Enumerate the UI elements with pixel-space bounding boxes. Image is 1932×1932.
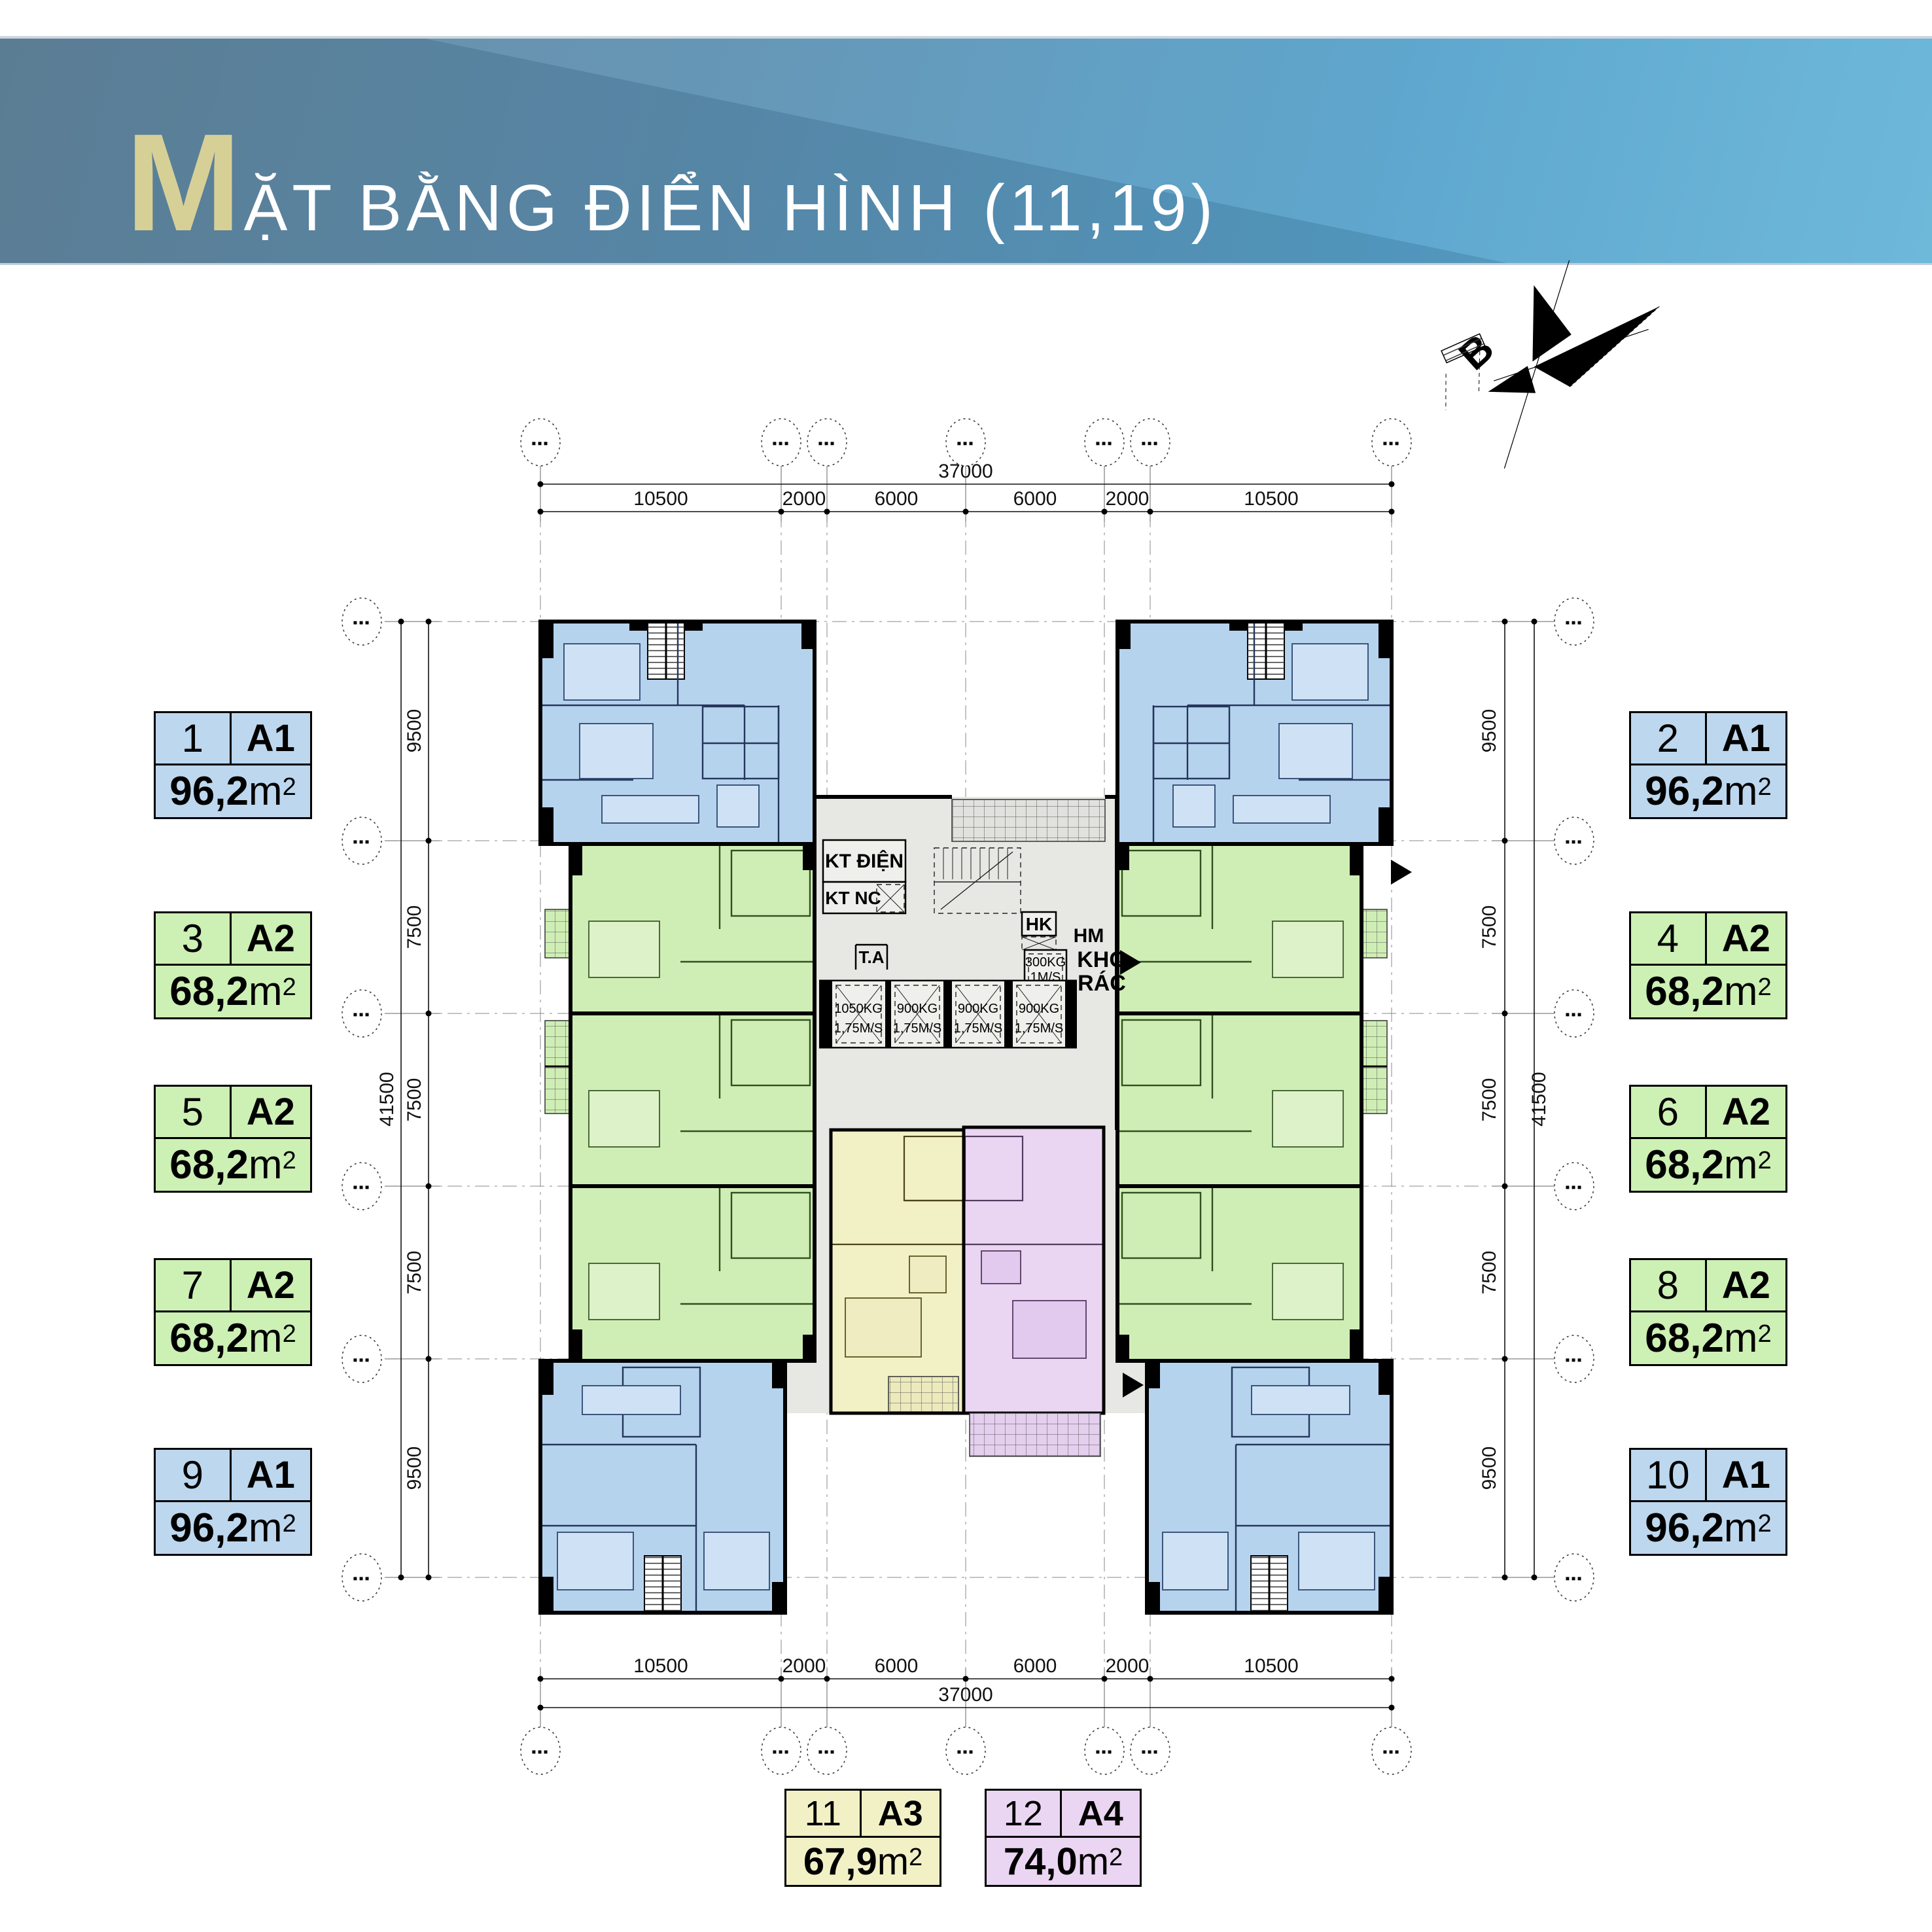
elevator-3: 900KG 1,75M/S	[952, 981, 1004, 1047]
unit-number: 7	[156, 1260, 232, 1312]
dimension-top: 37000 10500 2000 6000 6000 2000 10500 ▪▪…	[521, 419, 1411, 522]
unit-number: 11	[786, 1791, 862, 1838]
apartment-unit-11-a3	[831, 1130, 964, 1413]
dim-segment: 7500	[404, 1078, 425, 1122]
elevator-4: 900KG 1,75M/S	[1013, 981, 1065, 1047]
dim-segment: 9500	[1479, 1447, 1500, 1490]
room-label-hm: HM	[1074, 925, 1104, 947]
room-label-kt-dien: KT ĐIỆN	[825, 850, 904, 872]
unit-type: A1	[1707, 1450, 1785, 1502]
unit-type: A3	[862, 1791, 940, 1838]
unit-type: A2	[232, 1260, 310, 1312]
unit-area: 68,2m2	[1631, 1312, 1785, 1364]
apartment-unit-1-a1	[540, 622, 815, 844]
grid-bubble	[1372, 1727, 1411, 1774]
unit-number: 12	[987, 1791, 1062, 1838]
room-label-rac: RÁC	[1078, 971, 1126, 996]
unit-number: 1	[156, 713, 232, 765]
dim-segment: 10500	[1244, 1655, 1298, 1677]
unit-type: A2	[1707, 913, 1785, 966]
unit-type: A1	[1707, 713, 1785, 765]
grid-bubble	[342, 1163, 381, 1210]
unit-area: 68,2m2	[156, 1312, 310, 1364]
unit-type: A2	[1707, 1260, 1785, 1312]
unit-type: A2	[232, 913, 310, 966]
unit-type: A2	[1707, 1087, 1785, 1139]
dim-segment: 2000	[782, 488, 826, 510]
dim-segment: 7500	[404, 1251, 425, 1295]
slide: MẶT BẰNG ĐIỂN HÌNH (11,19)	[0, 0, 1932, 1932]
grid-bubble	[1554, 598, 1594, 645]
dim-segment: 9500	[1479, 709, 1500, 753]
unit-card-10: 10 A1 96,2m2	[1629, 1448, 1787, 1556]
apartment-column-a2-left	[545, 844, 815, 1361]
grid-bubble	[342, 598, 381, 645]
unit-number: 9	[156, 1450, 232, 1502]
dim-total-right: 41500	[1528, 1072, 1550, 1126]
dim-segment: 9500	[404, 1447, 425, 1490]
elevator-4-capacity: 900KG	[1019, 1002, 1059, 1016]
dim-segment: 2000	[1106, 488, 1150, 510]
dim-total-bottom: 37000	[938, 1684, 992, 1706]
grid-bubble	[946, 419, 985, 466]
unit-card-5: 5 A2 68,2m2	[154, 1085, 312, 1193]
elevator-1-capacity: 1050KG	[834, 1002, 882, 1016]
elevator-4-speed: 1,75M/S	[1015, 1021, 1063, 1036]
core-top-balcony	[952, 799, 1105, 841]
grid-bubble	[1554, 1163, 1594, 1210]
elevator-bank: 1050KG 1,75M/S 900KG 1,75M/S 900KG 1,75M…	[819, 981, 1077, 1047]
grid-bubble	[342, 990, 381, 1037]
dim-segment: 10500	[633, 1655, 688, 1677]
grid-bubble: ▪▪▪	[521, 419, 560, 466]
elevator-2-speed: 1,75M/S	[893, 1021, 941, 1036]
dim-total-left: 41500	[376, 1072, 398, 1126]
grid-bubble	[1085, 1727, 1124, 1774]
svg-text:▪▪▪: ▪▪▪	[531, 436, 549, 451]
unit-type: A4	[1062, 1791, 1140, 1838]
dimension-left: 41500 9500 7500 7500 7500 9500	[342, 598, 440, 1601]
grid-bubble	[1554, 1554, 1594, 1601]
unit-number: 10	[1631, 1450, 1707, 1502]
dim-segment: 2000	[782, 1655, 826, 1677]
section-arrow-icon	[1391, 860, 1412, 885]
unit-card-12: 12 A4 74,0m2	[985, 1789, 1142, 1887]
dim-segment: 10500	[1244, 488, 1298, 510]
unit-area: 74,0m2	[987, 1838, 1140, 1885]
dim-segment: 6000	[875, 488, 919, 510]
dim-segment: 9500	[404, 709, 425, 753]
grid-bubble	[1554, 1335, 1594, 1382]
elevator-1: 1050KG 1,75M/S	[832, 981, 885, 1047]
page-title: MẶT BẰNG ĐIỂN HÌNH (11,19)	[126, 128, 1218, 246]
dim-segment: 6000	[1013, 1655, 1057, 1677]
unit-card-6: 6 A2 68,2m2	[1629, 1085, 1787, 1193]
unit-type: A1	[232, 713, 310, 765]
elevator-1-speed: 1,75M/S	[834, 1021, 883, 1036]
grid-bubble	[1131, 419, 1170, 466]
apartment-column-a2-right	[1117, 844, 1387, 1361]
unit-number: 8	[1631, 1260, 1707, 1312]
apartment-unit-2-a1	[1117, 622, 1392, 844]
unit-area: 67,9m2	[786, 1838, 940, 1885]
unit-card-9: 9 A1 96,2m2	[154, 1448, 312, 1556]
room-label-kt-nc: KT NC	[825, 888, 881, 908]
grid-bubble	[1085, 419, 1124, 466]
room-label-hk: HK	[1026, 914, 1052, 934]
grid-bubble	[1131, 1727, 1170, 1774]
unit-area: 68,2m2	[1631, 1139, 1785, 1191]
unit-number: 2	[1631, 713, 1707, 765]
dim-segment: 7500	[1479, 1251, 1500, 1295]
unit-number: 4	[1631, 913, 1707, 966]
dim-segment: 7500	[1479, 1078, 1500, 1122]
unit-card-1: 1 A1 96,2m2	[154, 711, 312, 819]
title-initial: M	[126, 128, 241, 236]
elevator-2: 900KG 1,75M/S	[891, 981, 943, 1047]
unit-area: 96,2m2	[1631, 765, 1785, 817]
unit-area: 68,2m2	[156, 1139, 310, 1191]
grid-bubble	[946, 1727, 985, 1774]
unit-number: 6	[1631, 1087, 1707, 1139]
grid-bubble	[1554, 817, 1594, 864]
unit-area: 96,2m2	[156, 1502, 310, 1554]
dim-segment: 2000	[1106, 1655, 1150, 1677]
unit-area: 68,2m2	[1631, 966, 1785, 1017]
hoist-capacity: 300KG	[1025, 955, 1066, 970]
grid-bubble	[807, 1727, 847, 1774]
unit-card-4: 4 A2 68,2m2	[1629, 911, 1787, 1019]
dim-segment: 6000	[875, 1655, 919, 1677]
dim-segment: 10500	[633, 488, 688, 510]
room-label-ta: T.A	[859, 947, 885, 967]
dimension-bottom: 10500 2000 6000 6000 2000 10500 37000	[521, 1655, 1411, 1774]
grid-bubble	[1554, 990, 1594, 1037]
unit-area: 68,2m2	[156, 966, 310, 1017]
dimension-right: 9500 7500 7500 7500 9500 41500	[1479, 598, 1594, 1601]
grid-bubble	[521, 1727, 560, 1774]
north-arrow: B	[1412, 233, 1691, 480]
grid-bubble	[807, 419, 847, 466]
unit-card-11: 11 A3 67,9m2	[784, 1789, 941, 1887]
apartment-unit-12-a4	[964, 1127, 1104, 1456]
unit-card-8: 8 A2 68,2m2	[1629, 1258, 1787, 1366]
dim-segment: 6000	[1013, 488, 1057, 510]
grid-bubble	[342, 1335, 381, 1382]
apartment-unit-10-a1	[1147, 1361, 1392, 1613]
unit-card-2: 2 A1 96,2m2	[1629, 711, 1787, 819]
elevator-3-speed: 1,75M/S	[954, 1021, 1002, 1036]
elevator-3-capacity: 900KG	[958, 1002, 998, 1016]
unit-card-3: 3 A2 68,2m2	[154, 911, 312, 1019]
unit-type: A1	[232, 1450, 310, 1502]
elevator-2-capacity: 900KG	[897, 1002, 938, 1016]
title-text: ẶT BẰNG ĐIỂN HÌNH (11,19)	[244, 171, 1218, 246]
unit-area: 96,2m2	[156, 765, 310, 817]
apartment-unit-9-a1	[540, 1361, 785, 1613]
room-label-kho: KHO	[1077, 947, 1127, 972]
grid-bubble	[762, 419, 801, 466]
unit-number: 3	[156, 913, 232, 966]
unit-area: 96,2m2	[1631, 1502, 1785, 1554]
dim-segment: 7500	[404, 905, 425, 949]
unit-type: A2	[232, 1087, 310, 1139]
grid-bubble	[342, 1554, 381, 1601]
unit-card-7: 7 A2 68,2m2	[154, 1258, 312, 1366]
grid-bubble	[1372, 419, 1411, 466]
grid-bubble	[342, 817, 381, 864]
grid-bubble	[762, 1727, 801, 1774]
unit-number: 5	[156, 1087, 232, 1139]
dim-segment: 7500	[1479, 905, 1500, 949]
